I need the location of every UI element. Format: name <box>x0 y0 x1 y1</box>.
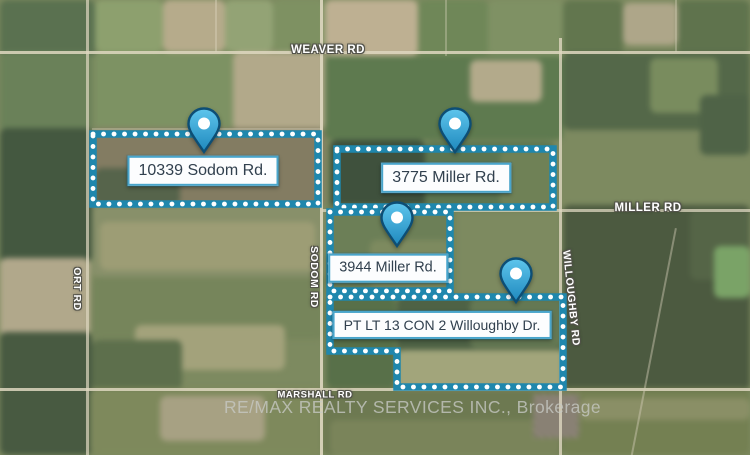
parcel-address-label-pt-lt-13-con-2-willoughby-dr[interactable]: PT LT 13 CON 2 Willoughby Dr. <box>333 311 552 339</box>
parcel-address-label-3775-miller-rd[interactable]: 3775 Miller Rd. <box>381 163 511 193</box>
brokerage-watermark: RE/MAX REALTY SERVICES INC., Brokerage <box>224 397 601 418</box>
map-pin-10339-sodom-rd[interactable] <box>186 107 222 154</box>
map-pin-pt-lt-13-con-2-willoughby-dr[interactable] <box>498 257 534 304</box>
map-pin-icon <box>437 107 473 154</box>
map-pin-3944-miller-rd[interactable] <box>379 201 415 248</box>
map-pin-icon <box>498 257 534 304</box>
parcel-address-label-3944-miller-rd[interactable]: 3944 Miller Rd. <box>328 254 448 283</box>
map-pin-icon <box>379 201 415 248</box>
map-pin-icon <box>186 107 222 154</box>
aerial-parcel-map: RE/MAX REALTY SERVICES INC., Brokerage 1… <box>0 0 750 455</box>
parcel-boundary-layer <box>0 0 750 455</box>
map-pin-3775-miller-rd[interactable] <box>437 107 473 154</box>
parcel-address-label-10339-sodom-rd[interactable]: 10339 Sodom Rd. <box>128 156 279 186</box>
